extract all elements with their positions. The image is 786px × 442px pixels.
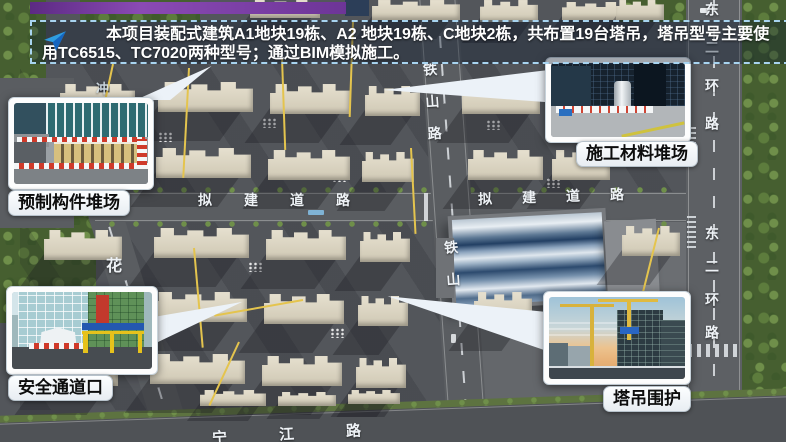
building-block xyxy=(262,356,342,386)
building-block xyxy=(264,294,344,324)
building-roof xyxy=(616,0,664,20)
safety-entrance-label[interactable]: 安全通道口 xyxy=(8,375,113,401)
crane-enclosure-label[interactable]: 塔吊围护 xyxy=(603,386,691,412)
building-block xyxy=(360,232,410,262)
blue-sign xyxy=(620,327,639,334)
crane-enclosure-inset[interactable] xyxy=(543,291,691,385)
building-roof xyxy=(266,230,346,260)
main-building xyxy=(617,310,663,369)
road-label-hua: 花 xyxy=(106,252,122,276)
road-label-proposed-1: 拟建道路 xyxy=(198,190,382,210)
map-label-chong: 冲 xyxy=(96,78,109,97)
canopy-sign xyxy=(82,323,144,331)
canopy-post-2 xyxy=(110,334,114,352)
crane-jib-2 xyxy=(598,299,658,301)
left-building xyxy=(551,66,591,106)
crane-enclosure-photo xyxy=(549,297,685,379)
building-roof xyxy=(264,294,344,324)
building-roof xyxy=(268,150,350,180)
safety-entrance-photo xyxy=(12,292,152,369)
building-block xyxy=(266,230,346,260)
building-block xyxy=(156,148,251,178)
building-roof xyxy=(362,152,414,182)
prefab-yard-label[interactable]: 预制构件堆场 xyxy=(8,190,130,216)
building-roof xyxy=(480,0,538,22)
construction-site-overview: 拟建道路 拟建道路 铁山路 铁山路 东二环路 东二环路 花 冲 宁江路 预制构件… xyxy=(0,0,786,442)
purple-top-bar xyxy=(30,2,346,14)
road-label-ring-2: 东二环路 xyxy=(702,226,722,358)
navy-block xyxy=(345,0,369,16)
material-yard-inset[interactable] xyxy=(545,57,691,143)
building-roof xyxy=(372,0,460,20)
backdrop-building xyxy=(14,103,49,135)
red-hoist xyxy=(96,295,109,326)
building-block xyxy=(278,392,336,406)
right-tower xyxy=(634,63,666,106)
safety-entrance-inset[interactable] xyxy=(6,286,158,375)
prefab-yard-inset[interactable] xyxy=(8,97,154,190)
ground-marking-dots xyxy=(330,328,345,338)
building-roof xyxy=(348,390,400,404)
building-roof xyxy=(468,150,543,180)
vehicle xyxy=(308,210,324,215)
truck xyxy=(559,109,572,116)
building-block xyxy=(154,228,249,258)
material-yard-photo xyxy=(551,63,685,137)
canopy-post-3 xyxy=(138,334,142,352)
crane-jib-1 xyxy=(560,304,614,306)
ground xyxy=(549,368,685,379)
banner-text: 本项目装配式建筑A1地块19栋、A2 地块19栋、C地块2栋，共布置19台塔吊，… xyxy=(42,25,780,63)
building-block xyxy=(348,390,400,404)
ground xyxy=(12,347,152,369)
road-hatch-2 xyxy=(687,214,696,248)
canopy-post-1 xyxy=(83,334,87,352)
striped-barrier xyxy=(29,343,85,349)
building-block xyxy=(616,0,664,20)
building-block xyxy=(468,150,543,180)
building-block xyxy=(480,0,538,22)
building-roof xyxy=(278,392,336,406)
ground-front xyxy=(14,169,148,184)
crane-mast-1 xyxy=(590,305,594,367)
project-banner: 本项目装配式建筑A1地块19栋、A2 地块19栋、C地块2栋，共布置19台塔吊，… xyxy=(30,20,786,64)
building-roof xyxy=(360,232,410,262)
building-block xyxy=(372,0,460,20)
building-roof xyxy=(262,356,342,386)
paper-plane-icon xyxy=(40,28,70,54)
building-block xyxy=(268,150,350,180)
building-roof xyxy=(356,358,406,388)
building-roof xyxy=(154,228,249,258)
building-block xyxy=(356,358,406,388)
teal-building xyxy=(46,103,148,137)
material-yard-label[interactable]: 施工材料堆场 xyxy=(576,141,698,167)
component-racks xyxy=(54,142,137,163)
right-building xyxy=(661,320,685,369)
building-block xyxy=(362,152,414,182)
prefab-yard-photo xyxy=(14,103,148,184)
fence-line xyxy=(549,366,685,368)
building-roof xyxy=(156,148,251,178)
fence-side xyxy=(137,139,146,170)
